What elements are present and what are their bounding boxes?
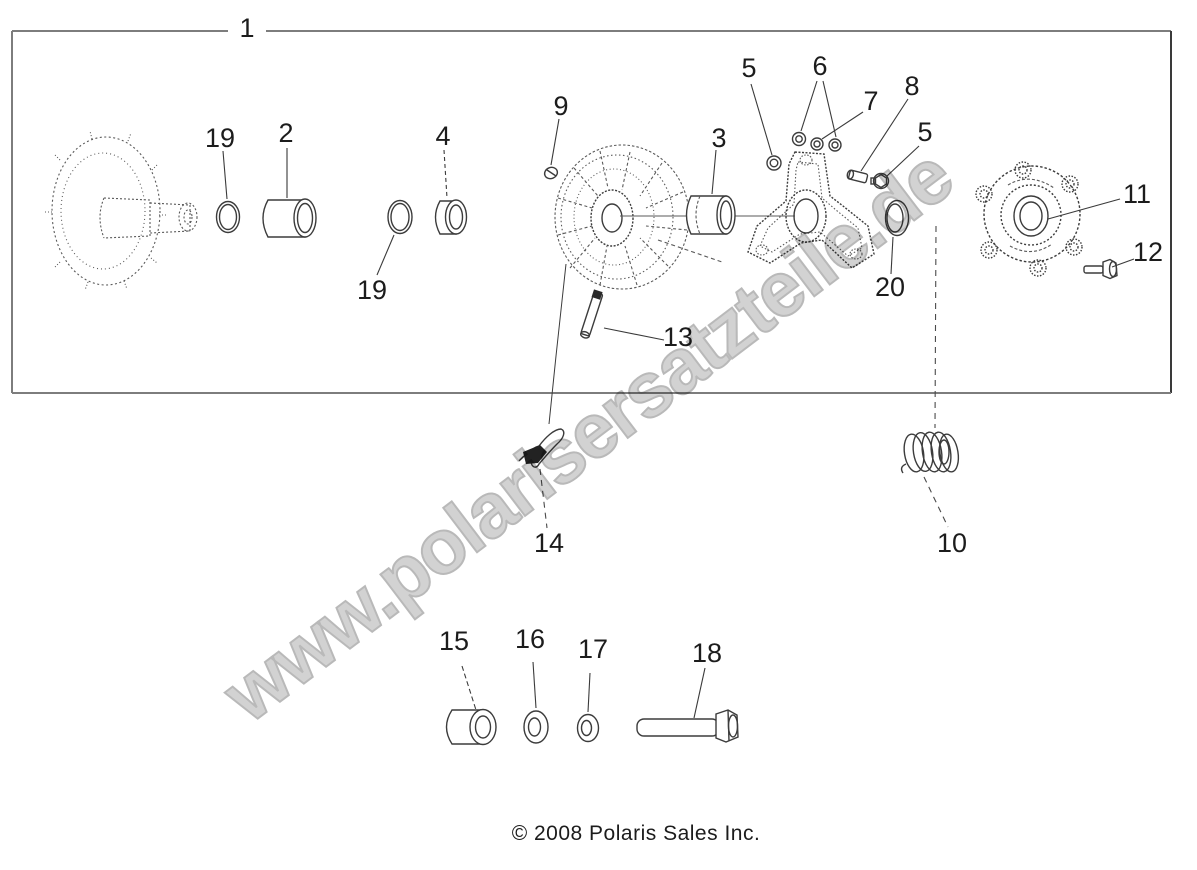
parts-diagram-page: www.polarisersatzteile.de bbox=[0, 0, 1197, 870]
callout-label-10: 10 bbox=[937, 528, 967, 558]
callout-label-9: 9 bbox=[553, 91, 568, 121]
callout-label-20: 20 bbox=[875, 272, 905, 302]
set-screw-9-drawing bbox=[543, 166, 559, 181]
callout-label-5-left: 5 bbox=[741, 53, 756, 83]
callout-label-18: 18 bbox=[692, 638, 722, 668]
callout-label-19-left: 19 bbox=[205, 123, 235, 153]
spring-10-drawing bbox=[902, 431, 961, 473]
cover-plate-11-drawing bbox=[976, 162, 1082, 276]
bolt-18-drawing bbox=[637, 710, 738, 742]
washer-17-drawing bbox=[578, 715, 599, 742]
movable-sheave-drawing bbox=[555, 145, 795, 289]
callout-label-11: 11 bbox=[1123, 179, 1151, 209]
ring-19-right-drawing bbox=[388, 201, 412, 234]
callout-label-5-right: 5 bbox=[917, 117, 932, 147]
pin-13-drawing bbox=[579, 289, 604, 339]
leader-lines bbox=[223, 81, 1134, 718]
roller-6a-drawing bbox=[793, 133, 806, 146]
callout-label-6: 6 bbox=[812, 51, 827, 81]
washer-5-left-drawing bbox=[767, 156, 781, 170]
callout-labels: 1 19 2 4 19 9 3 5 6 7 8 5 11 12 20 13 14… bbox=[205, 13, 1163, 668]
callout-label-13: 13 bbox=[663, 322, 693, 352]
weight-14-drawing bbox=[519, 429, 564, 467]
callout-label-3: 3 bbox=[711, 123, 726, 153]
bolt-12-drawing bbox=[1084, 260, 1117, 279]
drive-sheave-drawing bbox=[45, 131, 197, 290]
bushing-4-drawing bbox=[436, 200, 467, 234]
callout-label-2: 2 bbox=[278, 118, 293, 148]
callout-label-15: 15 bbox=[439, 626, 469, 656]
roller-6b-drawing bbox=[829, 139, 841, 151]
callout-label-7: 7 bbox=[863, 86, 878, 116]
exploded-diagram-canvas: 1 19 2 4 19 9 3 5 6 7 8 5 11 12 20 13 14… bbox=[0, 0, 1197, 870]
callout-label-14: 14 bbox=[534, 528, 564, 558]
callout-label-8: 8 bbox=[904, 71, 919, 101]
spider-drawing bbox=[748, 152, 874, 268]
callout-label-19-right: 19 bbox=[357, 275, 387, 305]
copyright-text: © 2008 Polaris Sales Inc. bbox=[512, 822, 761, 846]
callout-label-16: 16 bbox=[515, 624, 545, 654]
pin-8-drawing bbox=[846, 169, 868, 183]
bushing-3-drawing bbox=[687, 196, 736, 234]
spacer-15-drawing bbox=[447, 710, 497, 745]
bolt-5-right-drawing bbox=[871, 174, 889, 189]
callout-label-12: 12 bbox=[1133, 237, 1163, 267]
callout-label-1: 1 bbox=[239, 13, 254, 43]
assembly-box bbox=[12, 31, 1171, 393]
callout-label-4: 4 bbox=[435, 121, 450, 151]
roller-7-drawing bbox=[811, 138, 823, 150]
bushing-2-drawing bbox=[263, 199, 316, 237]
ring-19-left-drawing bbox=[217, 202, 240, 233]
ring-20-drawing bbox=[886, 201, 909, 236]
washer-16-drawing bbox=[524, 711, 548, 743]
callout-label-17: 17 bbox=[578, 634, 608, 664]
